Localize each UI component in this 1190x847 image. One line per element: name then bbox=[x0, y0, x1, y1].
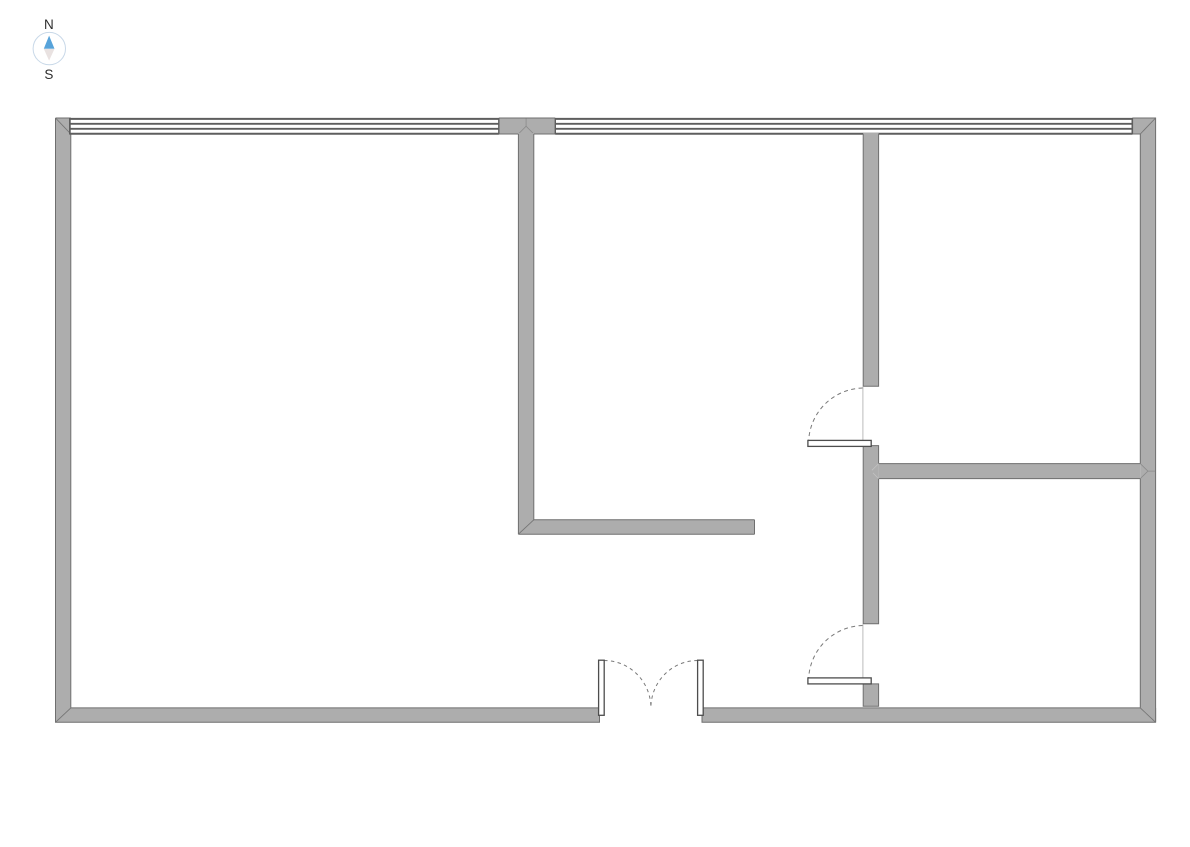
svg-text:N: N bbox=[44, 17, 54, 32]
svg-text:S: S bbox=[44, 67, 53, 82]
